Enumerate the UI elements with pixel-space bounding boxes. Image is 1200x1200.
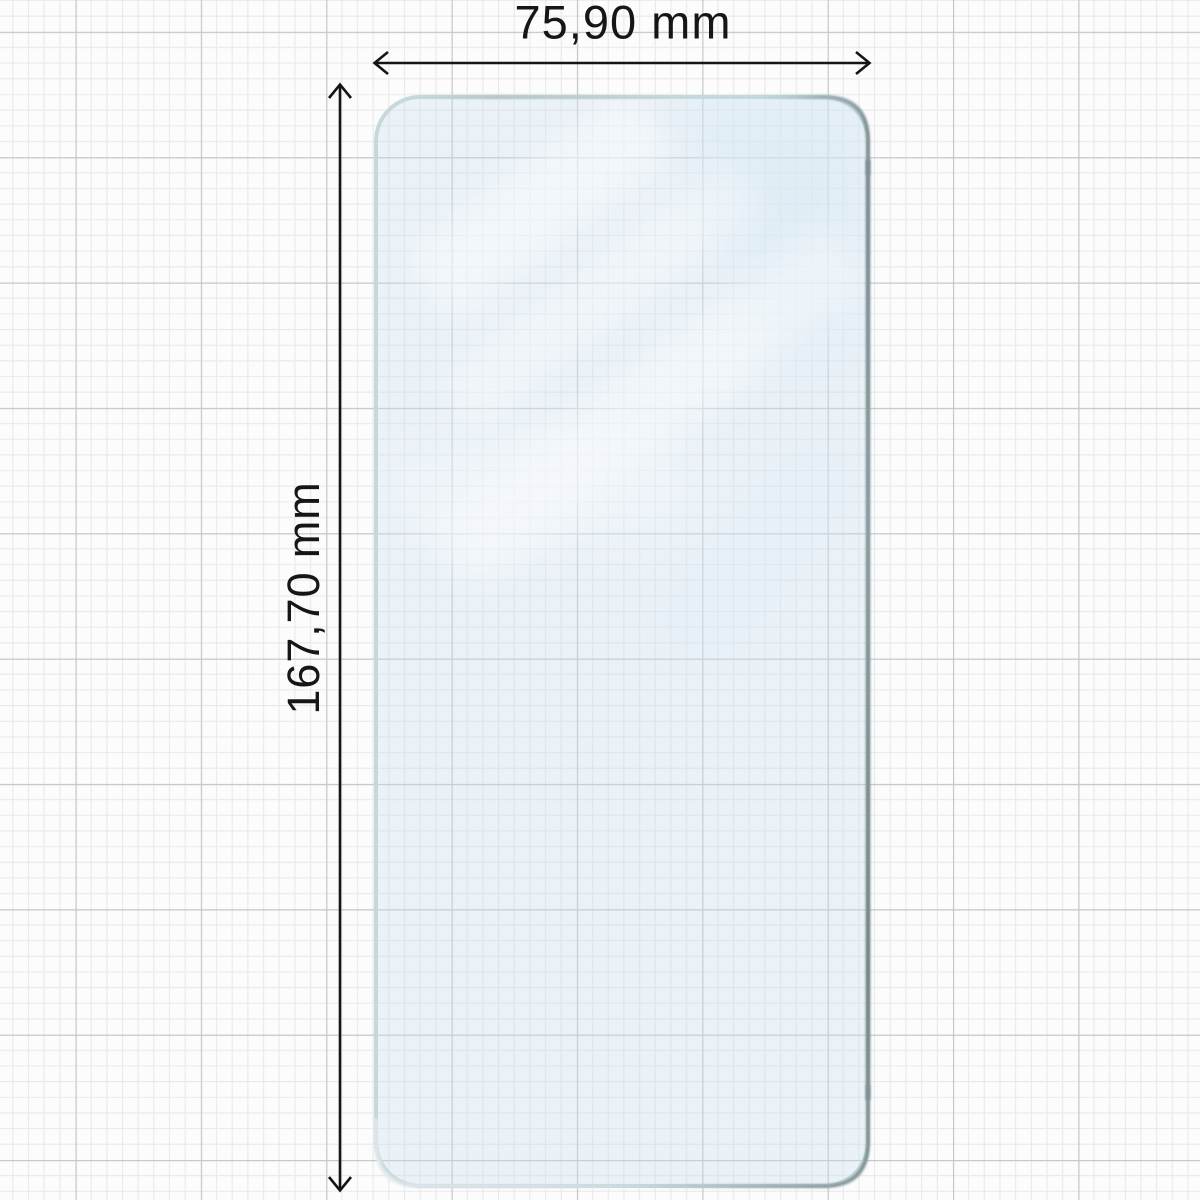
svg-text:75,90 mm: 75,90 mm: [515, 0, 732, 49]
svg-text:167,70 mm: 167,70 mm: [278, 481, 329, 714]
